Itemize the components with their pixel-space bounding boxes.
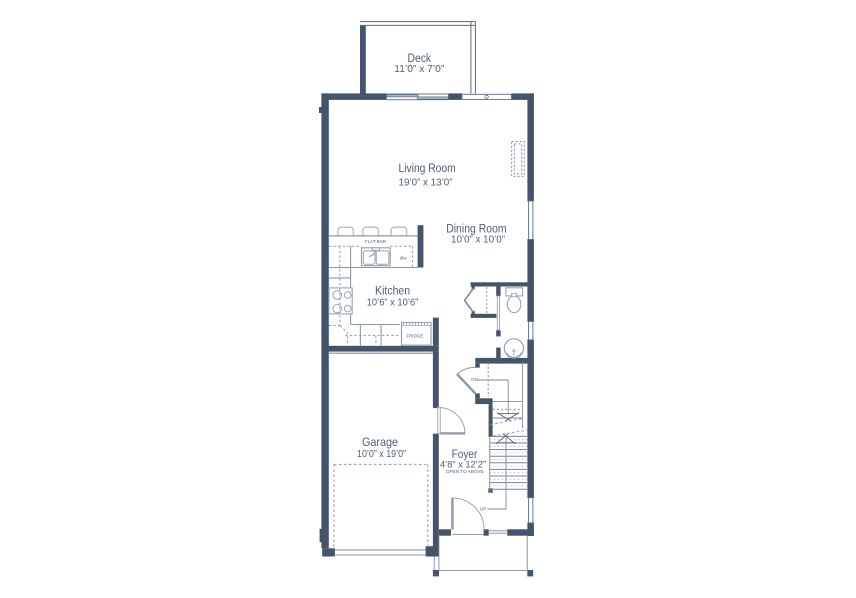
svg-text:DN: DN xyxy=(471,377,478,382)
svg-text:d/w: d/w xyxy=(400,256,408,261)
svg-text:10’0” x 19’0”: 10’0” x 19’0” xyxy=(357,449,406,460)
svg-text:4’8” x 12’2”: 4’8” x 12’2” xyxy=(440,459,486,469)
svg-text:FLAT BAR: FLAT BAR xyxy=(365,239,386,244)
svg-text:19’0” x 13’0”: 19’0” x 13’0” xyxy=(399,177,453,188)
svg-text:UP: UP xyxy=(480,507,486,512)
svg-text:Garage: Garage xyxy=(362,435,398,449)
svg-text:10’0” x 10’0”: 10’0” x 10’0” xyxy=(451,235,505,246)
svg-text:Kitchen: Kitchen xyxy=(375,284,410,298)
svg-text:Dining Room: Dining Room xyxy=(446,222,506,236)
svg-text:Living Room: Living Room xyxy=(399,161,456,175)
svg-text:OPEN TO ABOVE: OPEN TO ABOVE xyxy=(446,469,484,474)
svg-text:11’0” x 7’0”: 11’0” x 7’0” xyxy=(394,64,444,75)
svg-text:FRIDGE: FRIDGE xyxy=(407,334,424,339)
svg-text:10’6” x 10’6”: 10’6” x 10’6” xyxy=(367,298,419,309)
